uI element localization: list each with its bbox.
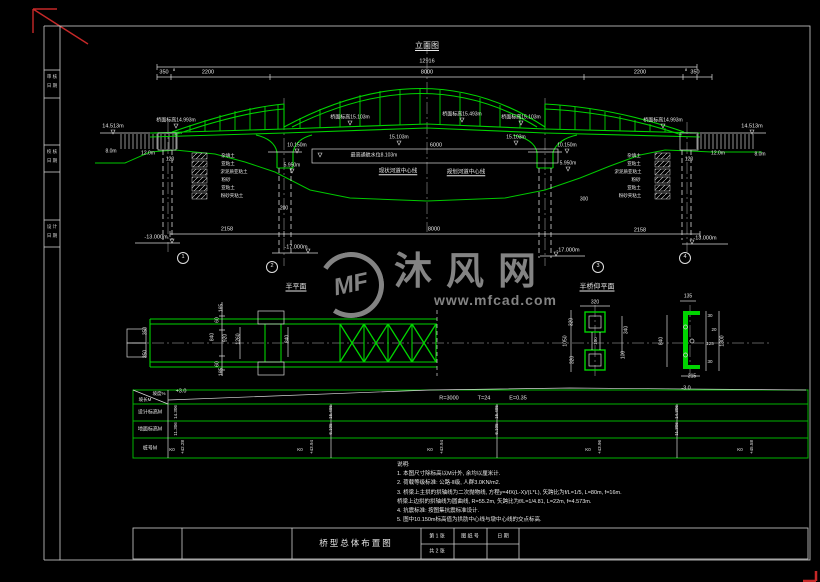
table-header-station: 桩号M — [143, 445, 157, 452]
view-title-half-plan: 半平面 — [286, 284, 307, 291]
frame-stamp-label: 日 期 — [44, 156, 60, 165]
soil-layer-label: 亚粘土 — [627, 186, 641, 191]
elevation-label: 8.0m — [105, 150, 116, 155]
dim-label: 1050 — [564, 335, 569, 346]
dim-label: 12916 — [419, 59, 434, 65]
dim-label: 8 — [173, 68, 175, 72]
elevation-label: 桥面标高15.103m — [501, 116, 540, 121]
frame-stamp: 校 核日 期 — [44, 147, 60, 165]
dim-label: 350 — [159, 70, 168, 76]
table-header-slope: 坡度% — [152, 391, 165, 397]
curve-param: E=0.35 — [509, 396, 527, 402]
dim-label: 840 — [660, 337, 665, 345]
elevation-label: 14.513m — [741, 124, 762, 130]
elevation-label: 10.150m — [287, 144, 306, 149]
table-header-design-elevation: 设计标高M — [138, 409, 162, 416]
design-elevation: 15.495 — [495, 405, 500, 419]
table-header-slope-length: 坡长M — [139, 397, 152, 403]
elevation-label: 桥面标高15.493m — [442, 113, 481, 118]
dim-label: 100 — [622, 351, 627, 359]
frame-stamp-label: 审 核 — [44, 72, 60, 81]
cad-drawing-viewport: MF 沐风网 www.mfcad.com — [0, 0, 820, 582]
design-elevation: 15.495 — [329, 405, 334, 419]
ground-elevation: 6.105 — [329, 423, 334, 434]
dim-label: 920 — [224, 334, 229, 342]
elevation-label: 桥面标高15.103m — [330, 116, 369, 121]
dim-label: 8000 — [421, 70, 433, 76]
centerline-label: 规划河道中心线 — [447, 170, 486, 176]
dim-label: 2158 — [634, 228, 646, 234]
dim-label: 215 — [688, 375, 696, 380]
sheet-number: 第 1 张 — [429, 533, 445, 540]
table-header-ground-elevation: 地面标高M — [138, 426, 162, 433]
station-label: +43.94 — [310, 440, 315, 454]
dim-label: 165 — [220, 304, 225, 312]
soil-layer-label: 淤泥质亚粘土 — [221, 170, 248, 175]
dim-label: 1300 — [721, 335, 726, 346]
support-number: 2 — [266, 261, 278, 273]
frame-stamp: 设 计日 期 — [44, 222, 60, 240]
station-label: +42.28 — [181, 440, 186, 454]
frame-stamp-label: 日 期 — [44, 231, 60, 240]
dim-label: 320 — [571, 356, 576, 364]
notes-block: 说明:1. 本图尺寸除标高以M计外, 余均以厘米计.2. 荷载等级标准: 公路-… — [397, 461, 757, 525]
dim-label: 340 — [625, 326, 630, 334]
grade-label: +3.0 — [176, 389, 187, 395]
station-label: K0 — [297, 448, 303, 453]
dim-label: 350 — [144, 350, 149, 358]
dim-label: 100 — [594, 337, 599, 345]
support-number: 1 — [177, 252, 189, 264]
drawing-number-label: 图 纸 号 — [461, 533, 479, 540]
dim-label: 1260 — [237, 333, 242, 344]
soil-layer-label: 亚粘土 — [221, 186, 235, 191]
elevation-label: -13.000m — [693, 236, 716, 242]
dim-label: 840 — [286, 335, 291, 343]
soil-layer-label: 粉砂夹粘土 — [221, 194, 244, 199]
curve-param: R=3000 — [439, 396, 458, 402]
frame-stamp-label: 日 期 — [44, 81, 60, 90]
station-label: +43.96 — [598, 440, 603, 454]
ground-elevation: 11.306 — [174, 422, 179, 435]
date-label: 日 期 — [497, 533, 508, 540]
elevation-label: 14.513m — [102, 124, 123, 130]
note-line: 3. 桥梁上主拱的拱轴线为二次抛物线, 方程y=4fX(L-X)/(L*L), … — [397, 489, 757, 498]
station-label: K0 — [737, 448, 743, 453]
elevation-label: 桥面标高14.993m — [643, 119, 682, 124]
elevation-label: 5.950m — [560, 162, 577, 167]
ground-elevation: 11.306 — [675, 422, 680, 435]
elevation-label: 15.103m — [506, 136, 525, 141]
curve-param: T=24 — [478, 396, 491, 402]
elevation-label: 8.0m — [754, 153, 765, 158]
soil-layer-label: 杂填土 — [221, 154, 235, 159]
elevation-label: 10.150m — [557, 144, 576, 149]
dim-label: 30 — [707, 360, 712, 365]
station-label: +43.94 — [440, 440, 445, 454]
station-label: K0 — [427, 448, 433, 453]
dim-label: 20 — [711, 328, 716, 333]
view-title-half-bottom-plan: 半桥仰平面 — [580, 284, 615, 291]
dim-label: 60 — [216, 361, 221, 367]
dim-label: 320 — [591, 301, 599, 306]
elevation-label: -17.000m — [556, 248, 579, 254]
note-line: 2. 荷载等级标准: 公路-Ⅱ级, 人群3.0KN/m2. — [397, 479, 757, 488]
frame-stamp-label: 校 核 — [44, 147, 60, 156]
drawing-title: 桥型总体布置图 — [319, 537, 393, 549]
frame-stamp: 审 核日 期 — [44, 72, 60, 90]
dim-label: 350 — [144, 327, 149, 335]
elevation-label: 12.0m — [141, 152, 155, 157]
dim-label: 120 — [685, 158, 693, 163]
dim-label: 8 — [685, 68, 687, 72]
elevation-label: -13.000m — [144, 235, 167, 241]
dim-label: 30 — [707, 314, 712, 319]
grade-label: -3.0 — [681, 386, 690, 392]
note-line: 说明: — [397, 461, 757, 470]
dim-label: 2200 — [634, 70, 646, 76]
dim-label: 2158 — [221, 227, 233, 233]
elevation-label: 15.103m — [389, 136, 408, 141]
dim-label: 2200 — [202, 70, 214, 76]
note-line: 4. 抗震标准: 按图集抗震标准设计. — [397, 507, 757, 516]
soil-layer-label: 亚粘土 — [221, 162, 235, 167]
elevation-label: 12.0m — [711, 152, 725, 157]
soil-layer-label: 粉砂夹粘土 — [619, 194, 642, 199]
dim-label: 200 — [280, 207, 288, 212]
elevation-label: -17.000m — [284, 245, 307, 251]
soil-layer-label: 亚粘土 — [627, 162, 641, 167]
dim-label: 60 — [216, 317, 221, 323]
water-level-label: 最高通航水位8.103m — [351, 154, 398, 159]
soil-layer-label: 粉砂 — [222, 178, 231, 183]
note-line: 桥梁上边拱的拱轴线为圆曲线, R=55.2m, 矢跨比为f/L=1/4.81, … — [397, 498, 757, 507]
note-line: 1. 本图尺寸除标高以M计外, 余均以厘米计. — [397, 470, 757, 479]
dim-label: 125 — [706, 342, 714, 347]
design-elevation: 14.306 — [675, 405, 680, 419]
dim-label: 300 — [580, 198, 588, 203]
sheet-total: 共 2 张 — [429, 548, 445, 555]
dim-label: 120 — [166, 158, 174, 163]
station-label: K0 — [169, 448, 175, 453]
elevation-label: 桥面标高14.993m — [156, 119, 195, 124]
dim-label: 135 — [684, 295, 692, 300]
frame-stamp-label: 设 计 — [44, 222, 60, 231]
soil-layer-label: 粉砂 — [632, 178, 641, 183]
dim-label: 165 — [220, 368, 225, 376]
support-number: 3 — [592, 261, 604, 273]
station-label: K0 — [585, 448, 591, 453]
station-label: +45.58 — [750, 440, 755, 454]
ground-elevation: 6.105 — [495, 423, 500, 434]
view-title-elevation: 立面图 — [415, 42, 439, 50]
dim-label: 320 — [570, 318, 575, 326]
soil-layer-label: 杂填土 — [627, 154, 641, 159]
dim-label: 8000 — [428, 227, 440, 233]
centerline-label: 现状河道中心线 — [379, 169, 418, 175]
dim-label: 350 — [690, 70, 699, 76]
dim-label: 6000 — [430, 143, 442, 149]
note-line: 5. 图中10.150m标高值为拱肋中心线与墩中心线的交点标高. — [397, 516, 757, 525]
elevation-label: 5.950m — [284, 164, 301, 169]
soil-layer-label: 淤泥质亚粘土 — [615, 170, 642, 175]
dim-label: 840 — [211, 333, 216, 341]
design-elevation: 14.306 — [174, 405, 179, 419]
support-number: 4 — [679, 252, 691, 264]
